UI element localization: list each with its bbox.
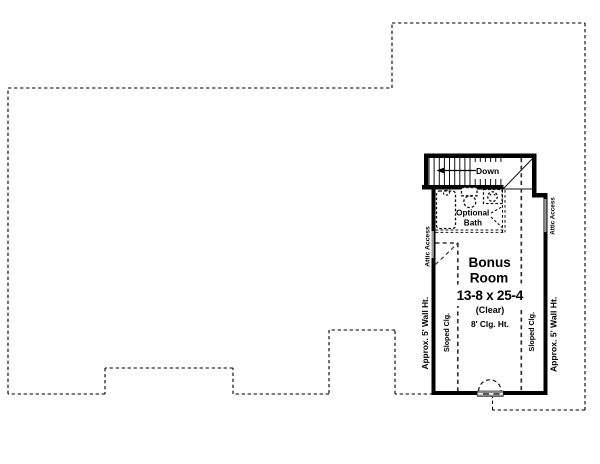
svg-text:Sloped Clg.: Sloped Clg. (443, 313, 451, 352)
svg-text:(Clear): (Clear) (476, 305, 505, 315)
svg-text:Down: Down (476, 166, 499, 176)
svg-text:Approx. 5' Wall Ht.: Approx. 5' Wall Ht. (420, 297, 430, 370)
svg-text:Bath: Bath (464, 219, 482, 228)
svg-text:8' Clg. Ht.: 8' Clg. Ht. (471, 319, 509, 329)
svg-text:Attic Access: Attic Access (550, 197, 557, 235)
svg-text:Approx. 5' Wall Ht.: Approx. 5' Wall Ht. (549, 297, 559, 372)
svg-text:Attic Access: Attic Access (425, 226, 432, 267)
svg-text:Optional: Optional (456, 209, 489, 218)
svg-text:Room: Room (470, 271, 509, 286)
svg-text:13-8 x 25-4: 13-8 x 25-4 (457, 288, 524, 303)
svg-text:Bonus: Bonus (469, 255, 511, 270)
svg-text:Sloped Clg.: Sloped Clg. (527, 312, 536, 352)
